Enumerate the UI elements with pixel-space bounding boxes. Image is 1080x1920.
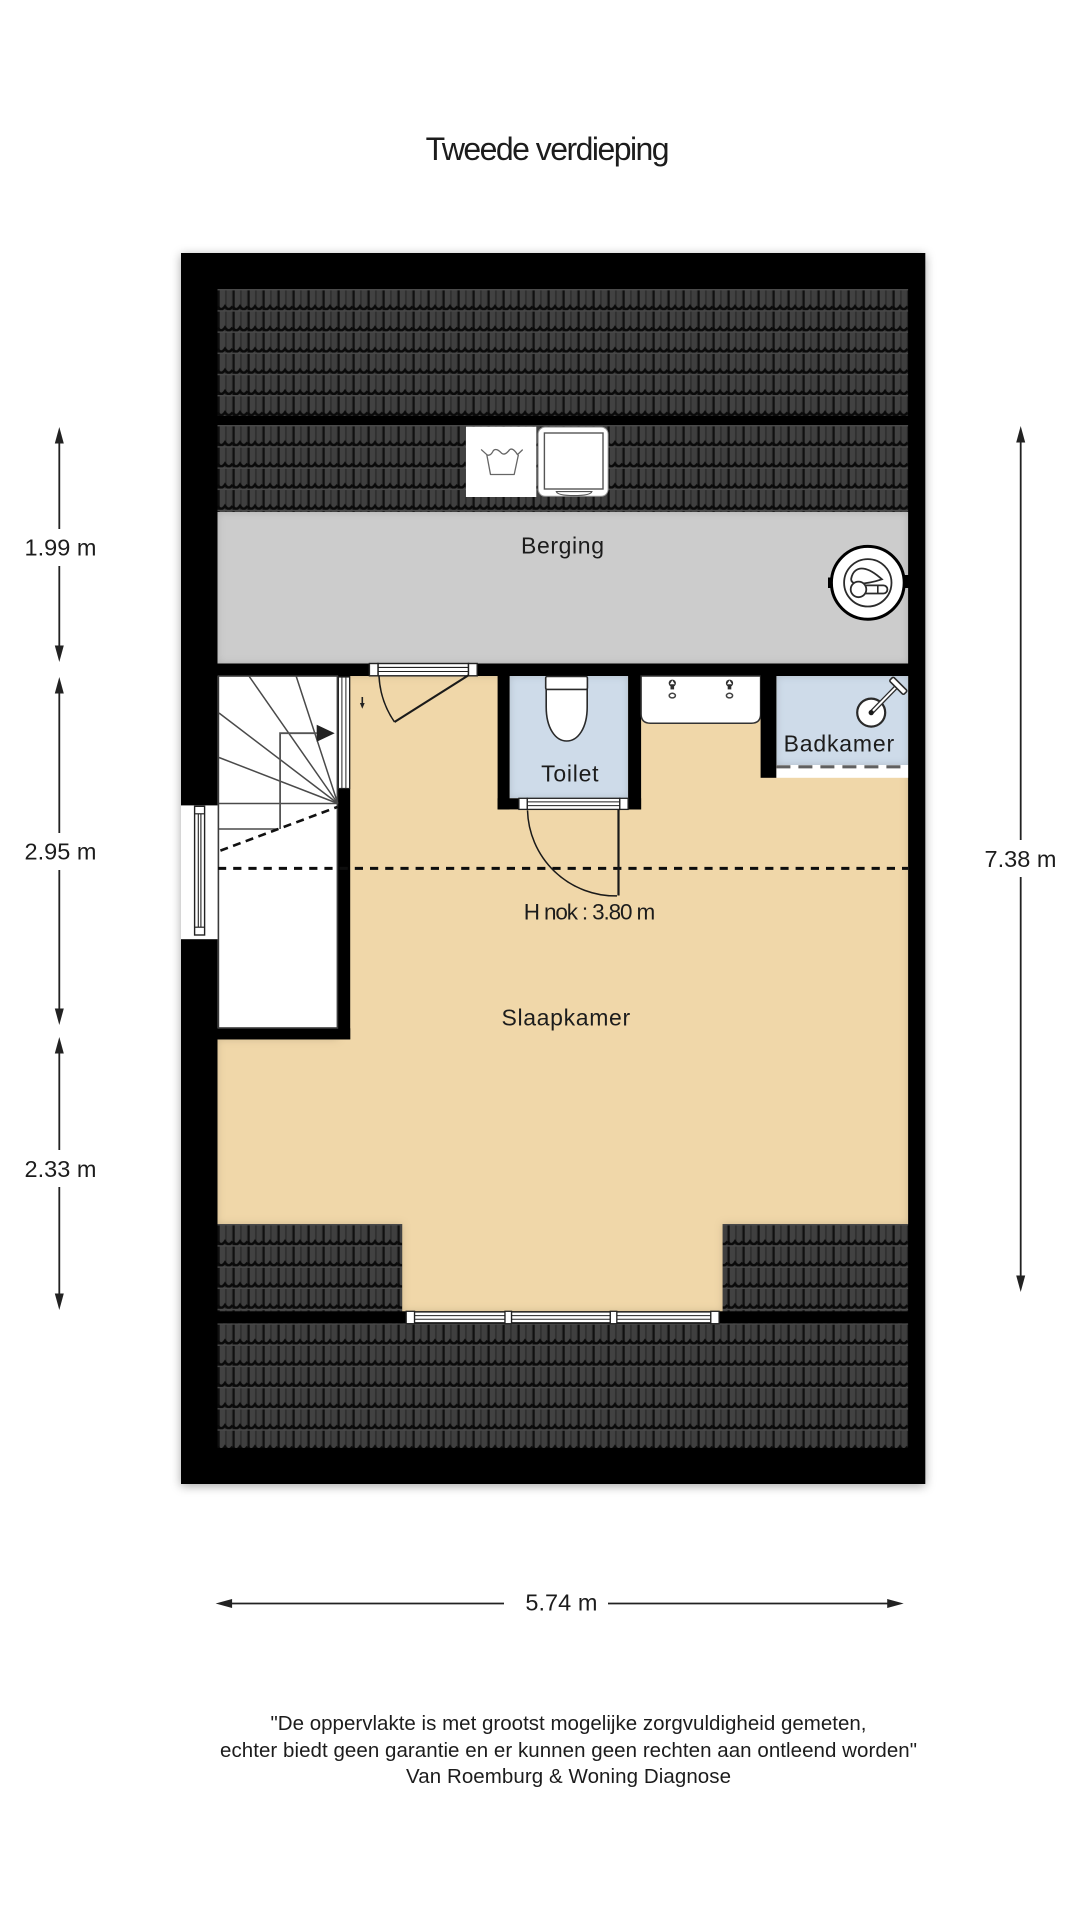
svg-text:Berging: Berging bbox=[521, 533, 604, 559]
svg-text:H nok : 3.80 m: H nok : 3.80 m bbox=[524, 900, 655, 925]
svg-text:Van Roemburg & Woning Diagnose: Van Roemburg & Woning Diagnose bbox=[406, 1765, 731, 1788]
svg-text:1.99 m: 1.99 m bbox=[25, 535, 97, 561]
svg-text:2.33 m: 2.33 m bbox=[25, 1156, 97, 1182]
svg-text:echter biedt geen garantie en: echter biedt geen garantie en er kunnen … bbox=[220, 1739, 917, 1762]
svg-text:Slaapkamer: Slaapkamer bbox=[501, 1005, 630, 1031]
svg-text:5.74 m: 5.74 m bbox=[525, 1590, 597, 1616]
svg-text:2.95 m: 2.95 m bbox=[25, 839, 97, 865]
svg-text:7.38 m: 7.38 m bbox=[985, 846, 1057, 872]
svg-text:Toilet: Toilet bbox=[541, 761, 599, 787]
svg-text:Badkamer: Badkamer bbox=[784, 731, 895, 757]
svg-text:Tweede verdieping: Tweede verdieping bbox=[426, 131, 670, 167]
svg-text:"De oppervlakte is met grootst: "De oppervlakte is met grootst mogelijke… bbox=[271, 1712, 867, 1735]
